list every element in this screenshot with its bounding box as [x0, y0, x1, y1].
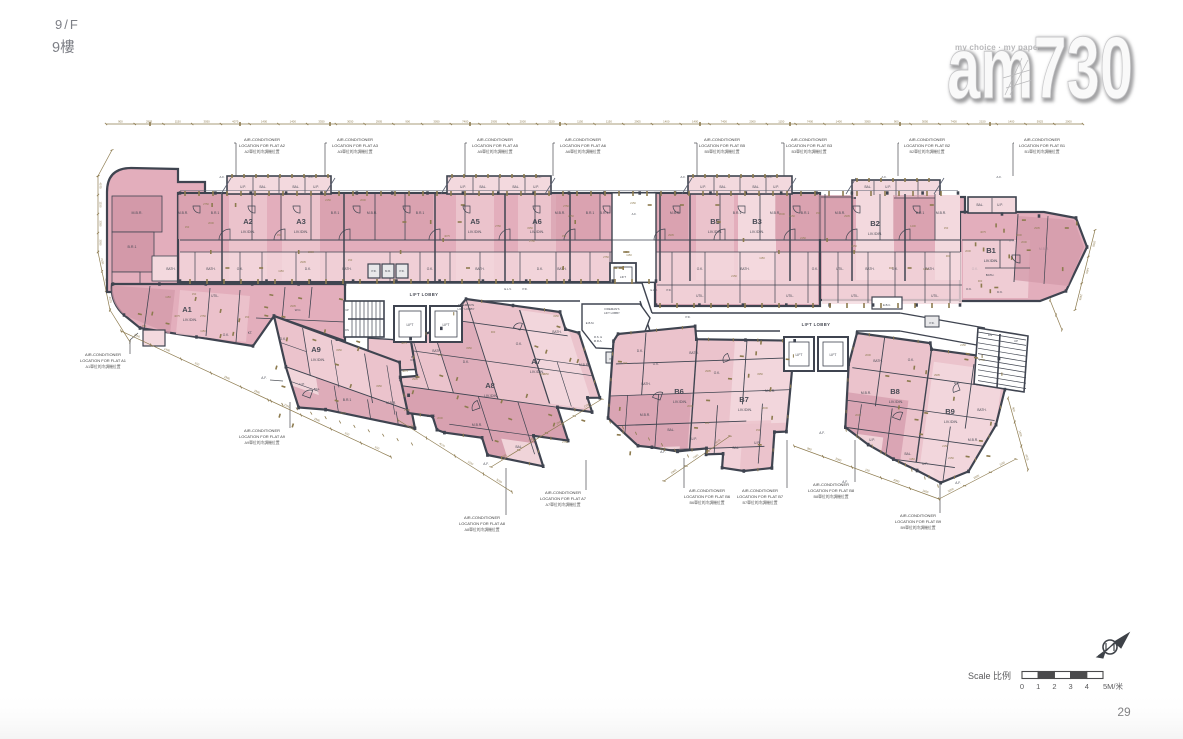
svg-text:A.F.: A.F. — [842, 480, 848, 484]
svg-text:2000: 2000 — [308, 250, 314, 254]
svg-text:AIR-CONDITIONER: AIR-CONDITIONER — [909, 137, 945, 142]
svg-text:BAL.: BAL. — [513, 185, 520, 189]
svg-text:2905: 2905 — [412, 377, 418, 381]
svg-text:LIV./DIN.: LIV./DIN. — [484, 394, 498, 398]
svg-text:2150: 2150 — [731, 274, 737, 278]
svg-text:A7: A7 — [531, 357, 541, 366]
svg-text:BATH.: BATH. — [641, 382, 650, 386]
svg-text:4075: 4075 — [340, 411, 346, 415]
svg-text:M.B.R.: M.B.R. — [861, 391, 871, 395]
svg-text:O.K.: O.K. — [516, 342, 522, 346]
svg-text:LIV./DIN.: LIV./DIN. — [311, 358, 325, 362]
svg-text:7400: 7400 — [721, 120, 728, 124]
svg-text:2750: 2750 — [563, 204, 569, 208]
svg-text:B3: B3 — [752, 217, 762, 226]
svg-text:1400: 1400 — [1008, 120, 1015, 124]
svg-text:1150: 1150 — [626, 253, 632, 257]
svg-text:LIV./DIN.: LIV./DIN. — [738, 408, 752, 412]
svg-text:2905: 2905 — [300, 260, 306, 264]
svg-text:UTIL.: UTIL. — [211, 294, 219, 298]
svg-text:LIV./DIN.: LIV./DIN. — [889, 400, 903, 404]
svg-text:150: 150 — [756, 428, 761, 432]
svg-text:2905: 2905 — [668, 233, 674, 237]
svg-text:150: 150 — [438, 353, 443, 357]
svg-text:M.B.R.: M.B.R. — [132, 211, 143, 215]
svg-text:2000: 2000 — [1016, 233, 1022, 237]
svg-text:LIFT LOBBY: LIFT LOBBY — [458, 307, 475, 311]
svg-text:3050: 3050 — [433, 120, 440, 124]
svg-text:BAL.: BAL. — [720, 185, 727, 189]
svg-text:3350: 3350 — [376, 384, 382, 388]
svg-text:9樓: 9樓 — [52, 39, 75, 56]
svg-text:150: 150 — [142, 324, 147, 328]
svg-text:DN: DN — [988, 333, 992, 337]
svg-text:U.P.: U.P. — [773, 185, 779, 189]
svg-text:E.B.C.: E.B.C. — [883, 303, 891, 307]
svg-text:O.K.: O.K. — [697, 267, 703, 271]
svg-text:BATH.: BATH. — [986, 273, 995, 277]
svg-text:5M/米: 5M/米 — [1103, 681, 1124, 691]
svg-text:3350: 3350 — [527, 226, 533, 230]
svg-text:3050: 3050 — [864, 120, 871, 124]
svg-text:150: 150 — [944, 226, 949, 230]
svg-text:O.K.: O.K. — [653, 362, 659, 366]
svg-text:B6單位的冷調機位置: B6單位的冷調機位置 — [689, 500, 724, 505]
svg-text:B2單位的冷調機位置: B2單位的冷調機位置 — [909, 149, 944, 154]
svg-text:BAL.: BAL. — [865, 185, 872, 189]
svg-text:2750: 2750 — [529, 239, 535, 243]
svg-text:900: 900 — [889, 266, 894, 270]
svg-text:LOCATION FOR FLAT A1: LOCATION FOR FLAT A1 — [80, 358, 127, 363]
svg-text:3050: 3050 — [922, 120, 929, 124]
svg-text:900: 900 — [705, 421, 710, 425]
svg-text:150: 150 — [348, 258, 353, 262]
svg-text:M.B.R.: M.B.R. — [579, 363, 589, 367]
svg-text:O.K.: O.K. — [223, 333, 229, 337]
svg-text:D.K.: D.K. — [637, 349, 643, 353]
svg-text:M.B.R.: M.B.R. — [367, 211, 377, 215]
svg-text:2000: 2000 — [762, 406, 768, 410]
svg-text:Scale 比例: Scale 比例 — [968, 670, 1011, 681]
svg-text:5925: 5925 — [1037, 120, 1044, 124]
svg-text:2: 2 — [1052, 682, 1056, 691]
svg-text:2150: 2150 — [800, 236, 806, 240]
svg-text:A.F.: A.F. — [680, 175, 685, 179]
svg-text:A.F.: A.F. — [448, 175, 453, 179]
svg-text:2150: 2150 — [948, 456, 954, 460]
svg-text:1400: 1400 — [290, 120, 297, 124]
svg-text:U.P.: U.P. — [691, 437, 697, 441]
svg-text:LIFT: LIFT — [407, 323, 414, 327]
svg-text:LOCATION FOR FLAT B9: LOCATION FOR FLAT B9 — [895, 519, 942, 524]
svg-text:AIR-CONDITIONER: AIR-CONDITIONER — [337, 137, 373, 142]
svg-text:A.F.: A.F. — [996, 175, 1001, 179]
svg-text:BATH.: BATH. — [552, 330, 561, 334]
svg-text:2905: 2905 — [491, 120, 498, 124]
svg-text:am730: am730 — [947, 18, 1133, 117]
svg-text:B8: B8 — [890, 387, 900, 396]
svg-text:A.F.: A.F. — [483, 462, 489, 466]
svg-text:1: 1 — [1036, 682, 1040, 691]
svg-text:AIR-CONDITIONER: AIR-CONDITIONER — [565, 137, 601, 142]
svg-text:4: 4 — [1085, 682, 1089, 691]
svg-text:D.K.: D.K. — [537, 267, 543, 271]
svg-text:7400: 7400 — [951, 120, 958, 124]
svg-text:A9: A9 — [311, 345, 321, 354]
svg-text:LIFT: LIFT — [443, 323, 450, 327]
svg-text:LOCATION FOR FLAT A5: LOCATION FOR FLAT A5 — [472, 143, 519, 148]
svg-text:M.B.R.: M.B.R. — [178, 211, 188, 215]
svg-text:B.R.1: B.R.1 — [801, 211, 810, 215]
svg-text:UP: UP — [345, 308, 349, 312]
svg-text:3050: 3050 — [203, 120, 210, 124]
svg-text:LOCATION FOR FLAT A8: LOCATION FOR FLAT A8 — [459, 521, 506, 526]
svg-text:2000: 2000 — [1065, 120, 1072, 124]
svg-text:LIV./DIN.: LIV./DIN. — [294, 230, 308, 234]
svg-text:KT.: KT. — [248, 331, 253, 335]
svg-text:AIR-CONDITIONER: AIR-CONDITIONER — [742, 488, 778, 493]
svg-text:B.R.1: B.R.1 — [211, 211, 220, 215]
svg-text:3: 3 — [1069, 682, 1073, 691]
svg-text:2150: 2150 — [325, 198, 331, 202]
svg-text:P.D.: P.D. — [522, 287, 527, 291]
svg-text:1150: 1150 — [759, 256, 765, 260]
svg-text:LIFT LOBBY: LIFT LOBBY — [604, 311, 620, 315]
svg-text:P.D.: P.D. — [399, 269, 404, 273]
svg-text:U.P.: U.P. — [885, 185, 891, 189]
svg-text:150: 150 — [245, 315, 250, 319]
svg-text:B.R.1: B.R.1 — [343, 398, 352, 402]
svg-text:AIR-CONDITIONER: AIR-CONDITIONER — [900, 513, 936, 518]
svg-text:LOCATION FOR FLAT B8: LOCATION FOR FLAT B8 — [808, 488, 855, 493]
svg-text:1150: 1150 — [200, 329, 206, 333]
svg-text:LIV./DIN.: LIV./DIN. — [708, 230, 722, 234]
svg-text:A6單位的冷調機位置: A6單位的冷調機位置 — [565, 149, 600, 154]
svg-text:A.F.: A.F. — [955, 481, 961, 485]
svg-text:1150: 1150 — [165, 295, 171, 299]
svg-text:BATH.: BATH. — [977, 408, 986, 412]
svg-text:U.P.: U.P. — [997, 203, 1003, 207]
svg-text:LOCATION FOR FLAT B3: LOCATION FOR FLAT B3 — [786, 143, 833, 148]
svg-text:AIR-CONDITIONER: AIR-CONDITIONER — [477, 137, 513, 142]
svg-text:4075: 4075 — [402, 369, 408, 373]
svg-text:LIV./DIN.: LIV./DIN. — [468, 230, 482, 234]
svg-text:1150: 1150 — [778, 120, 784, 124]
svg-text:2000: 2000 — [855, 413, 861, 417]
svg-text:150: 150 — [623, 361, 628, 365]
svg-text:BATH.: BATH. — [166, 267, 175, 271]
svg-text:B.R.1: B.R.1 — [427, 414, 436, 418]
svg-text:1150: 1150 — [606, 120, 612, 124]
svg-text:1150: 1150 — [278, 269, 284, 273]
svg-text:M.B.R.: M.B.R. — [640, 413, 650, 417]
svg-text:7400: 7400 — [462, 120, 469, 124]
svg-text:2750: 2750 — [562, 440, 568, 444]
svg-text:M.R.: M.R. — [385, 269, 391, 273]
svg-text:LOCATION FOR FLAT A6: LOCATION FOR FLAT A6 — [560, 143, 607, 148]
svg-text:3350: 3350 — [318, 120, 325, 124]
svg-text:2905: 2905 — [634, 120, 641, 124]
svg-text:3050: 3050 — [347, 120, 354, 124]
svg-text:2000: 2000 — [779, 212, 785, 216]
svg-text:LOCATION FOR FLAT A7: LOCATION FOR FLAT A7 — [540, 496, 587, 501]
svg-text:LIV./DIN.: LIV./DIN. — [750, 230, 764, 234]
svg-text:BATH.: BATH. — [873, 359, 882, 363]
svg-text:A.F.: A.F. — [536, 175, 541, 179]
svg-text:1400: 1400 — [261, 120, 268, 124]
svg-text:BAL.: BAL. — [260, 185, 267, 189]
svg-text:150: 150 — [192, 292, 197, 296]
svg-text:2750: 2750 — [203, 202, 209, 206]
svg-text:2750: 2750 — [568, 214, 574, 218]
svg-text:2905: 2905 — [376, 120, 383, 124]
svg-text:B.R.1: B.R.1 — [331, 211, 340, 215]
svg-text:LIFT LOBBY: LIFT LOBBY — [802, 322, 831, 327]
svg-text:2905: 2905 — [705, 369, 711, 373]
svg-text:B.R.1: B.R.1 — [586, 211, 595, 215]
svg-text:150: 150 — [185, 225, 190, 229]
svg-text:LIV./DIN.: LIV./DIN. — [868, 232, 882, 236]
svg-text:D.K.: D.K. — [463, 360, 469, 364]
svg-text:LIV./DIN.: LIV./DIN. — [673, 400, 687, 404]
svg-text:2905: 2905 — [934, 373, 940, 377]
svg-text:D.K.: D.K. — [997, 290, 1003, 294]
svg-text:AIR-CONDITIONER: AIR-CONDITIONER — [689, 488, 725, 493]
svg-text:B.R.1: B.R.1 — [600, 211, 609, 215]
svg-text:U.P.: U.P. — [869, 438, 875, 442]
svg-text:O.K.: O.K. — [237, 267, 243, 271]
svg-text:A1: A1 — [182, 305, 192, 314]
svg-text:AIR-CONDITIONER: AIR-CONDITIONER — [85, 352, 121, 357]
svg-text:900: 900 — [894, 120, 899, 124]
svg-text:LOCATION FOR FLAT A3: LOCATION FOR FLAT A3 — [332, 143, 379, 148]
svg-text:2750: 2750 — [979, 358, 985, 362]
svg-text:A.F.: A.F. — [261, 376, 267, 380]
svg-text:4075: 4075 — [444, 234, 450, 238]
svg-text:150: 150 — [816, 211, 821, 215]
svg-text:B.R.1: B.R.1 — [128, 245, 137, 249]
svg-text:AIR-CONDITIONER: AIR-CONDITIONER — [1024, 137, 1060, 142]
svg-text:W.C.: W.C. — [295, 308, 302, 312]
svg-text:BATH.: BATH. — [432, 349, 441, 353]
svg-text:1400: 1400 — [910, 224, 916, 228]
svg-text:A6: A6 — [532, 217, 542, 226]
svg-text:P.D.: P.D. — [929, 321, 934, 325]
svg-text:LIV./DIN.: LIV./DIN. — [183, 318, 197, 322]
svg-text:A3: A3 — [296, 217, 306, 226]
svg-text:A.F.: A.F. — [819, 431, 825, 435]
svg-text:BATH.: BATH. — [475, 267, 484, 271]
svg-text:D.K.: D.K. — [280, 337, 286, 341]
svg-text:U.P.: U.P. — [533, 185, 539, 189]
svg-text:P.D.: P.D. — [685, 315, 690, 319]
svg-text:2905: 2905 — [1034, 226, 1040, 230]
svg-text:LIFT LOBBY: LIFT LOBBY — [410, 292, 439, 297]
svg-text:2150: 2150 — [960, 343, 966, 347]
svg-text:900: 900 — [491, 330, 496, 334]
svg-text:1400: 1400 — [923, 267, 929, 271]
svg-text:LOCATION FOR FLAT B1: LOCATION FOR FLAT B1 — [1019, 143, 1066, 148]
svg-text:UTIL.: UTIL. — [851, 294, 859, 298]
svg-text:BATH.: BATH. — [740, 267, 749, 271]
svg-text:BAL.: BAL. — [977, 203, 984, 207]
svg-text:D.K.: D.K. — [954, 381, 960, 385]
svg-text:3350: 3350 — [553, 314, 559, 318]
svg-text:4075: 4075 — [980, 230, 986, 234]
svg-text:AIR-CONDITIONER: AIR-CONDITIONER — [545, 490, 581, 495]
svg-text:A9單位的冷調機位置: A9單位的冷調機位置 — [244, 440, 279, 445]
svg-text:UTIL.: UTIL. — [931, 294, 939, 298]
svg-text:B2: B2 — [870, 219, 880, 228]
svg-text:2150: 2150 — [789, 214, 795, 218]
svg-text:2150: 2150 — [979, 120, 986, 124]
svg-text:AIR-CONDITIONER: AIR-CONDITIONER — [244, 137, 280, 142]
svg-text:B6: B6 — [674, 387, 684, 396]
svg-text:E.B.M.: E.B.M. — [586, 321, 595, 325]
svg-text:2000: 2000 — [208, 221, 214, 225]
svg-text:BATH.: BATH. — [865, 267, 874, 271]
svg-text:LIFT: LIFT — [830, 353, 837, 357]
svg-text:UTIL.: UTIL. — [786, 294, 794, 298]
svg-text:A3單位的冷調機位置: A3單位的冷調機位置 — [337, 149, 372, 154]
svg-text:AIR-CONDITIONER: AIR-CONDITIONER — [244, 428, 280, 433]
svg-text:BAL.: BAL. — [753, 185, 760, 189]
svg-text:B.R.1: B.R.1 — [733, 211, 742, 215]
svg-text:A.F.: A.F. — [308, 175, 313, 179]
svg-text:M.B.R.: M.B.R. — [386, 401, 396, 405]
svg-text:A2: A2 — [243, 217, 253, 226]
svg-text:2150: 2150 — [942, 444, 948, 448]
svg-text:0: 0 — [1020, 682, 1024, 691]
svg-text:900: 900 — [118, 120, 123, 124]
svg-text:U.P.: U.P. — [299, 382, 305, 386]
svg-text:P.D.: P.D. — [371, 269, 376, 273]
svg-text:DN: DN — [345, 328, 349, 332]
svg-text:LIV./DIN.: LIV./DIN. — [944, 420, 958, 424]
svg-text:LOCATION FOR FLAT B5: LOCATION FOR FLAT B5 — [699, 143, 746, 148]
svg-text:1150: 1150 — [99, 201, 103, 207]
svg-text:B3單位的冷調機位置: B3單位的冷調機位置 — [791, 149, 826, 154]
svg-text:A.F.: A.F. — [632, 212, 637, 216]
svg-text:B9單位的冷調機位置: B9單位的冷調機位置 — [900, 525, 935, 530]
svg-text:A1單位的冷調機位置: A1單位的冷調機位置 — [85, 364, 120, 369]
svg-text:LIFT: LIFT — [620, 275, 626, 279]
svg-text:4075: 4075 — [401, 341, 407, 345]
svg-text:B7: B7 — [739, 395, 749, 404]
svg-text:1400: 1400 — [836, 120, 843, 124]
svg-text:BAL.: BAL. — [480, 185, 487, 189]
svg-text:4075: 4075 — [232, 120, 239, 124]
svg-text:LIFT: LIFT — [796, 353, 803, 357]
svg-text:150: 150 — [562, 234, 567, 238]
svg-text:2000: 2000 — [965, 249, 971, 253]
svg-text:BATH.: BATH. — [342, 267, 351, 271]
svg-text:150: 150 — [277, 233, 282, 237]
svg-text:A7單位的冷調機位置: A7單位的冷調機位置 — [545, 502, 580, 507]
svg-text:A5單位的冷調機位置: A5單位的冷調機位置 — [477, 149, 512, 154]
svg-text:1400: 1400 — [692, 120, 699, 124]
svg-text:LIV./DIN.: LIV./DIN. — [241, 230, 255, 234]
svg-text:D.K.: D.K. — [305, 267, 311, 271]
svg-text:BAL.: BAL. — [668, 428, 675, 432]
svg-text:BAL.: BAL. — [314, 387, 321, 391]
svg-text:M.B.R.: M.B.R. — [936, 211, 946, 215]
svg-text:A2單位的冷調機位置: A2單位的冷調機位置 — [244, 149, 279, 154]
svg-text:2750: 2750 — [603, 255, 609, 259]
svg-text:B9: B9 — [945, 407, 955, 416]
svg-text:M.B.R.: M.B.R. — [968, 438, 978, 442]
svg-text:9/F: 9/F — [55, 17, 80, 32]
svg-text:UP: UP — [1014, 339, 1018, 343]
svg-text:LOCATION FOR FLAT A2: LOCATION FOR FLAT A2 — [239, 143, 286, 148]
svg-text:900: 900 — [660, 447, 665, 451]
svg-text:BAL.: BAL. — [905, 452, 912, 456]
svg-text:A.F.: A.F. — [219, 175, 224, 179]
svg-text:LOCATION FOR FLAT B7: LOCATION FOR FLAT B7 — [737, 494, 784, 499]
svg-text:3350: 3350 — [757, 372, 763, 376]
svg-text:AIR-CONDITIONER: AIR-CONDITIONER — [791, 137, 827, 142]
svg-text:2905: 2905 — [290, 304, 296, 308]
svg-text:UTIL.: UTIL. — [696, 294, 704, 298]
svg-text:LIV./DIN.: LIV./DIN. — [530, 230, 544, 234]
svg-text:900: 900 — [405, 120, 410, 124]
svg-text:3350: 3350 — [336, 348, 342, 352]
svg-text:3350: 3350 — [851, 244, 857, 248]
svg-text:E.L.V.: E.L.V. — [650, 288, 657, 292]
svg-text:BATH.: BATH. — [206, 267, 215, 271]
svg-text:3050: 3050 — [99, 239, 103, 246]
svg-text:2000: 2000 — [865, 353, 871, 357]
svg-text:1400: 1400 — [663, 120, 670, 124]
svg-text:O.K.: O.K. — [714, 371, 720, 375]
svg-text:UTIL.: UTIL. — [836, 267, 844, 271]
svg-text:900: 900 — [946, 254, 951, 258]
svg-text:2150: 2150 — [630, 201, 636, 205]
svg-text:M.B.R.: M.B.R. — [555, 211, 565, 215]
svg-text:BATH.: BATH. — [557, 267, 566, 271]
svg-text:B1單位的冷調機位置: B1單位的冷調機位置 — [1024, 149, 1059, 154]
svg-text:4075: 4075 — [99, 182, 103, 189]
svg-text:2000: 2000 — [520, 120, 527, 124]
svg-text:B7單位的冷調機位置: B7單位的冷調機位置 — [742, 500, 777, 505]
svg-text:U.P.: U.P. — [922, 462, 928, 466]
svg-text:BAL.: BAL. — [293, 185, 300, 189]
svg-text:2000: 2000 — [437, 416, 443, 420]
svg-text:O.K.: O.K. — [427, 267, 433, 271]
svg-text:3350: 3350 — [99, 220, 103, 227]
svg-text:7400: 7400 — [807, 120, 814, 124]
svg-text:A8單位的冷調機位置: A8單位的冷調機位置 — [464, 527, 499, 532]
svg-text:O.K.: O.K. — [812, 267, 818, 271]
svg-text:2000: 2000 — [360, 198, 366, 202]
svg-text:A.F.: A.F. — [767, 175, 772, 179]
svg-text:2150: 2150 — [548, 120, 555, 124]
svg-text:1150: 1150 — [577, 120, 583, 124]
svg-text:2150: 2150 — [539, 372, 545, 376]
svg-text:B.R.1: B.R.1 — [416, 211, 425, 215]
svg-text:M.R.A.: M.R.A. — [594, 339, 603, 343]
svg-text:U.P.: U.P. — [569, 407, 575, 411]
svg-text:AIR-CONDITIONER: AIR-CONDITIONER — [704, 137, 740, 142]
svg-text:1150: 1150 — [909, 457, 915, 461]
svg-text:U.P.: U.P. — [460, 185, 466, 189]
svg-text:B1: B1 — [986, 246, 996, 255]
svg-text:LOCATION FOR FLAT B2: LOCATION FOR FLAT B2 — [904, 143, 951, 148]
svg-text:E.L.V.: E.L.V. — [504, 287, 512, 291]
svg-text:U.P.: U.P. — [313, 185, 319, 189]
svg-text:900: 900 — [978, 279, 983, 283]
svg-text:O.K.: O.K. — [908, 358, 914, 362]
